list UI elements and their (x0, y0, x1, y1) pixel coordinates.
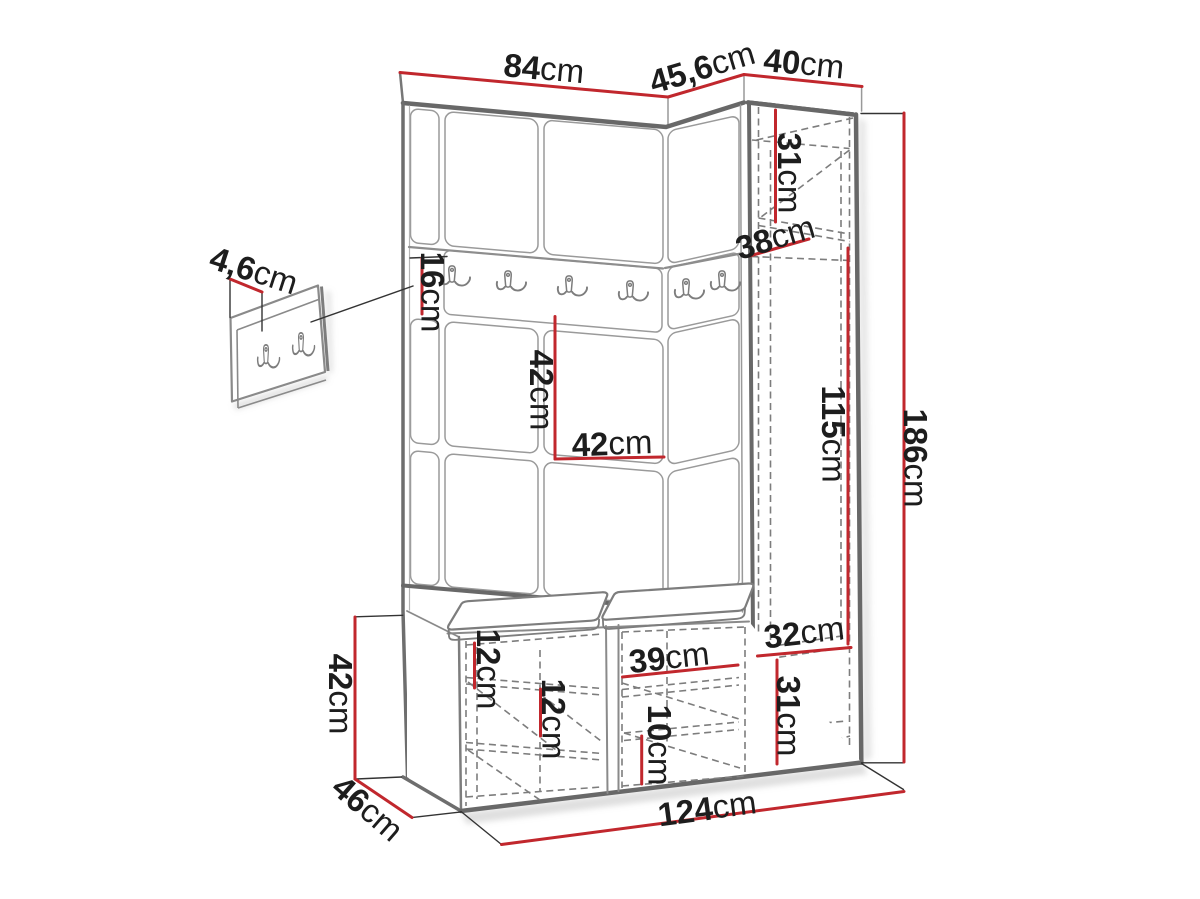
svg-text:42cm: 42cm (524, 350, 561, 431)
svg-text:31cm: 31cm (771, 676, 808, 757)
svg-text:84cm: 84cm (502, 46, 586, 90)
svg-text:12cm: 12cm (471, 629, 508, 710)
svg-text:186cm: 186cm (898, 408, 935, 507)
svg-text:42cm: 42cm (323, 654, 360, 735)
svg-text:10cm: 10cm (642, 705, 679, 786)
svg-text:115cm: 115cm (816, 385, 853, 482)
svg-text:45,6cm: 45,6cm (645, 34, 759, 100)
svg-text:4,6cm: 4,6cm (206, 239, 303, 302)
svg-text:31cm: 31cm (772, 133, 809, 214)
svg-text:12cm: 12cm (536, 679, 573, 760)
svg-text:42cm: 42cm (571, 423, 653, 463)
svg-text:16cm: 16cm (415, 252, 452, 333)
